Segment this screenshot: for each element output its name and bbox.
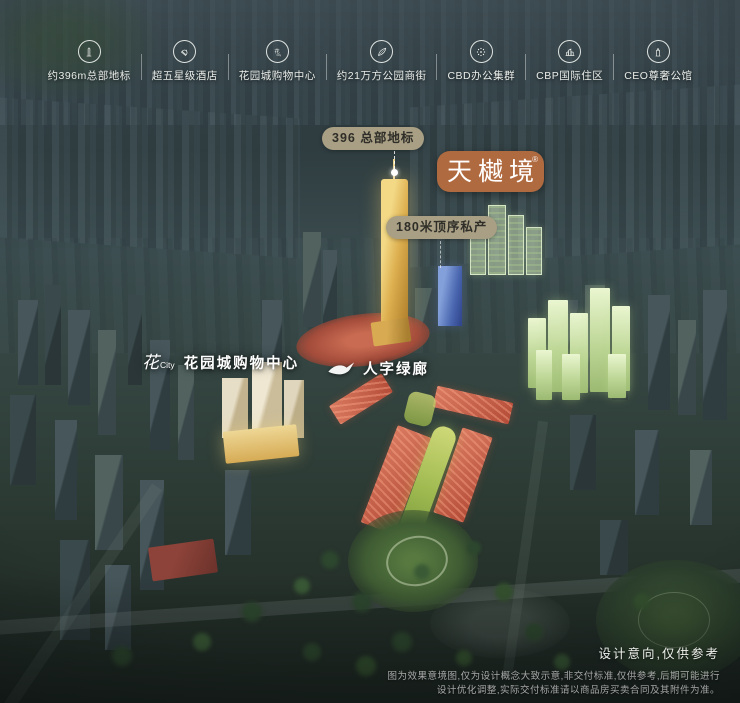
disclaimer-line-1: 图为效果意境图,仅为设计概念大致示意,非交付标准,仅供参考,后期可能进行 xyxy=(387,670,720,684)
disclaimer-title: 设计意向,仅供参考 xyxy=(387,643,720,662)
logo-hua-glyph: 花 xyxy=(142,354,159,371)
disclaimer-block: 设计意向,仅供参考 图为效果意境图,仅为设计概念大致示意,非交付标准,仅供参考,… xyxy=(387,643,720,697)
divider xyxy=(326,54,327,80)
feature-item-hotel: 超五星级酒店 xyxy=(152,36,218,83)
wireframe-tower xyxy=(508,215,524,275)
flower-city-logo: 花 City xyxy=(142,354,175,371)
logo-city-word: City xyxy=(160,360,175,371)
green-tower xyxy=(608,354,626,398)
svg-text:City: City xyxy=(277,53,282,57)
flower-city-mall-icon: 花City xyxy=(266,40,289,63)
office-cluster-icon xyxy=(470,40,493,63)
wireframe-tower xyxy=(526,227,542,275)
residence-buildings-icon xyxy=(558,40,581,63)
feature-item-landmark: 约396m总部地标 xyxy=(48,36,131,83)
hotel-bell-icon xyxy=(173,40,196,63)
green-residence-cluster xyxy=(528,288,646,402)
feature-item-cbd: CBD办公集群 xyxy=(447,36,515,83)
feature-label: 约396m总部地标 xyxy=(48,68,131,83)
leader-line-180 xyxy=(440,241,441,268)
feature-bar: 约396m总部地标 超五星级酒店 花City 花园城购物中心 约21万方公园商街 xyxy=(0,36,740,83)
feature-item-park-street: 约21万方公园商街 xyxy=(337,36,427,83)
divider xyxy=(141,54,142,80)
render-stage: 约396m总部地标 超五星级酒店 花City 花园城购物中心 约21万方公园商街 xyxy=(0,0,740,703)
divider xyxy=(525,54,526,80)
callout-396-landmark: 396 总部地标 xyxy=(322,127,424,150)
tree-canopy xyxy=(0,0,12,12)
feature-label: CBP国际住区 xyxy=(536,68,603,83)
divider xyxy=(436,54,437,80)
feature-item-ceo: CEO尊奢公馆 xyxy=(624,36,692,83)
landmark-tower-icon xyxy=(78,40,101,63)
feature-label: 花园城购物中心 xyxy=(239,68,316,83)
feature-item-mall: 花City 花园城购物中心 xyxy=(239,36,316,83)
brand-name: 天樾境 xyxy=(437,151,544,192)
brand-badge: 天樾境 ® xyxy=(437,151,544,192)
park-leaf-icon xyxy=(370,40,393,63)
green-corridor-label: 人字绿廊 xyxy=(363,358,429,379)
gold-landmark-tower xyxy=(381,179,408,325)
green-tower xyxy=(590,288,610,392)
wireframe-tower xyxy=(488,205,506,275)
registered-trademark-icon: ® xyxy=(532,155,538,164)
green-tower xyxy=(536,350,552,400)
mall-label: 花园城购物中心 xyxy=(184,352,300,373)
green-tower xyxy=(562,354,580,400)
feature-label: CEO尊奢公馆 xyxy=(624,68,692,83)
callout-green-corridor: 人字绿廊 xyxy=(326,358,429,379)
divider xyxy=(228,54,229,80)
mansion-tower-icon xyxy=(647,40,670,63)
callout-garden-city-mall: 花 City 花园城购物中心 xyxy=(142,352,299,373)
bird-icon xyxy=(326,360,356,377)
feature-label: 约21万方公园商街 xyxy=(337,68,427,83)
feature-label: 超五星级酒店 xyxy=(152,68,218,83)
feature-label: CBD办公集群 xyxy=(447,68,515,83)
leader-dot-396 xyxy=(391,169,398,176)
feature-item-cbp: CBP国际住区 xyxy=(536,36,603,83)
east-park-ring-path xyxy=(638,592,710,648)
divider xyxy=(613,54,614,80)
leader-line-396 xyxy=(394,151,395,169)
blue-glass-tower xyxy=(438,266,462,326)
callout-180m-residence: 180米顶序私产 xyxy=(386,216,497,239)
disclaimer-line-2: 设计优化调整,实际交付标准请以商品房买卖合同及其附件为准。 xyxy=(387,684,720,698)
